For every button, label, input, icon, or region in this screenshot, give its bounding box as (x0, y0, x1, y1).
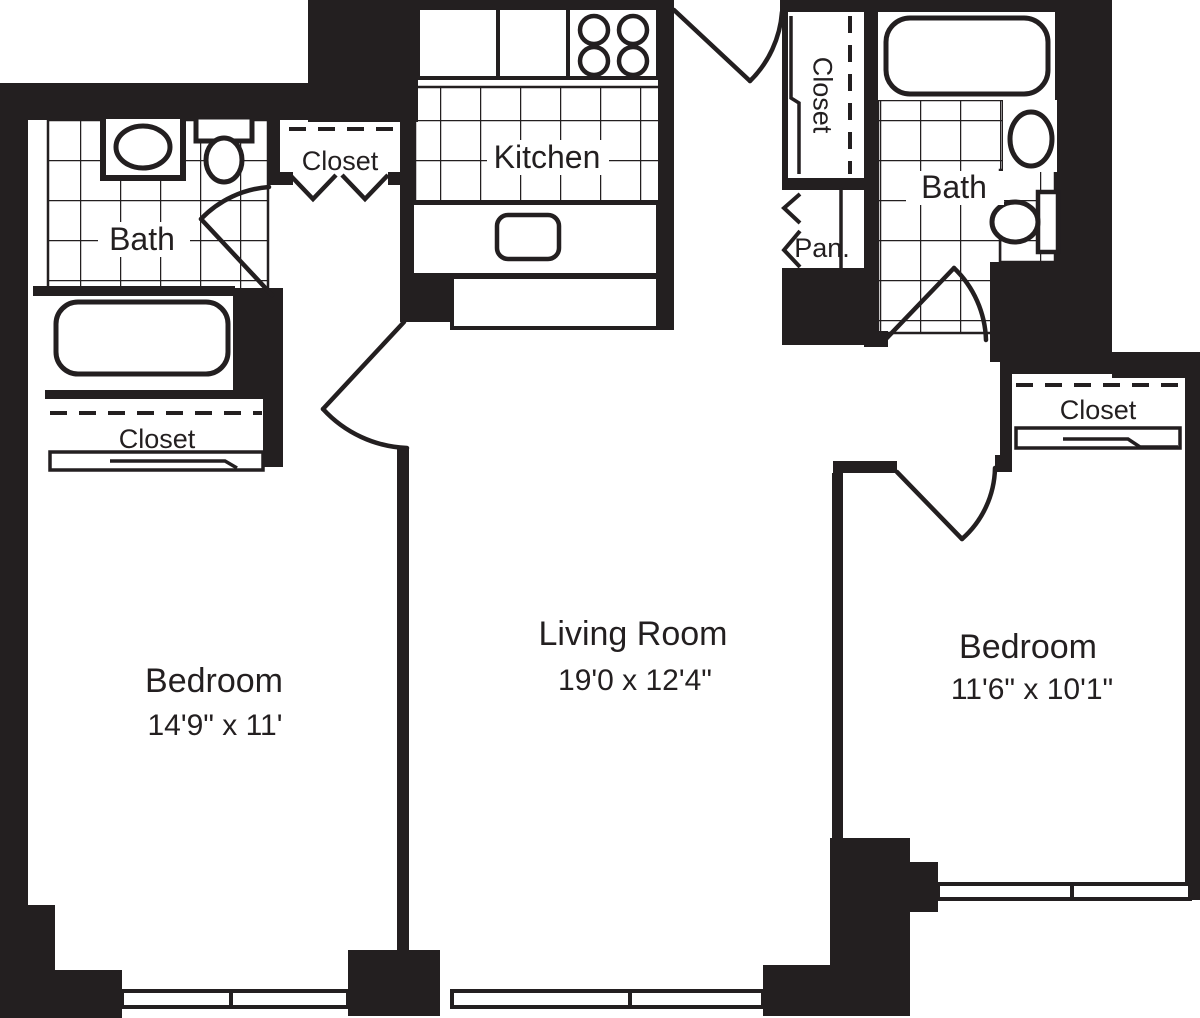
tub-icon (886, 18, 1048, 94)
entry-closet-label: Closet (808, 57, 838, 134)
pantry-label: Pan. (794, 233, 850, 263)
wall-kitchen-right (658, 0, 674, 330)
floor-plan-canvas: Bath Closet Kitchen Closet Pan. Bath Clo… (0, 0, 1200, 1018)
wall-above-closet-left (45, 390, 270, 399)
wall-divider-left (397, 448, 409, 952)
column-center-step (885, 862, 938, 912)
kitchen-label: Kitchen (494, 139, 601, 175)
counter-lower (452, 277, 658, 328)
bedroom-left-dims: 14'9" x 11' (148, 709, 283, 742)
window-bedroom-right (938, 884, 1190, 899)
floor-plan: Bath Closet Kitchen Closet Pan. Bath Clo… (0, 0, 1200, 1018)
window-bedroom-left (122, 991, 348, 1007)
wall-closet-left-east (263, 390, 283, 467)
column-left-bottom (348, 950, 440, 1016)
wall-bedroom-right-door-stub (995, 455, 1012, 472)
wall-block-top (308, 0, 418, 122)
kitchen-sink-icon (497, 215, 559, 259)
bath-left-label: Bath (109, 221, 175, 257)
column-center-base (763, 965, 833, 1016)
wall-tub-left-mass (233, 288, 283, 390)
sink-icon (116, 126, 170, 168)
wall-divider-right (832, 473, 843, 843)
wall-closet-right-top (1011, 362, 1185, 374)
wall-bath-right-east (1055, 0, 1112, 272)
wall-right-outer (1185, 374, 1200, 900)
bedroom-left-name: Bedroom (145, 662, 283, 700)
bedroom-right-closet-label: Closet (1060, 395, 1137, 425)
bedroom-left-closet-label: Closet (119, 424, 196, 454)
wall-bedroom-right-top-stub (833, 461, 897, 473)
bedroom-right-dims: 11'6" x 10'1" (951, 673, 1113, 706)
living-room-dims: 19'0 x 12'4" (558, 664, 712, 697)
toilet-bowl-icon (206, 138, 242, 182)
bedroom-right-name: Bedroom (959, 628, 1097, 666)
wall-closet-strip-left (782, 12, 788, 190)
toilet-bowl-icon (992, 202, 1038, 242)
window-living-room (452, 991, 763, 1007)
wall-closet-right-left (1000, 362, 1012, 462)
tub-icon (56, 302, 228, 374)
wall-left-corner (0, 970, 122, 1018)
wall-left-step (0, 905, 55, 973)
wall-above-tub-left (33, 286, 235, 296)
wall-hall-closet-stub-right (388, 172, 404, 185)
sink-icon (1010, 112, 1052, 166)
wall-bath-right-south-mass (990, 262, 1112, 362)
hall-closet-label: Closet (302, 146, 379, 176)
living-room-name: Living Room (539, 615, 728, 653)
wall-pantry-mass (782, 268, 878, 345)
wall-closet-strip-bottom (786, 178, 866, 190)
bath-right-label: Bath (921, 169, 987, 205)
toilet-tank-icon (1038, 192, 1058, 252)
wall-left-outer (0, 83, 28, 913)
